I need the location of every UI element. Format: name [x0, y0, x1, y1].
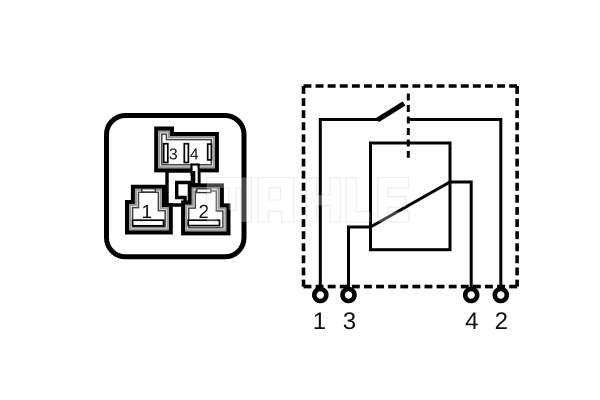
svg-text:2: 2 — [495, 308, 508, 335]
svg-text:4: 4 — [190, 146, 199, 163]
svg-text:4: 4 — [465, 308, 478, 335]
svg-text:1: 1 — [142, 202, 153, 223]
svg-text:3: 3 — [343, 308, 356, 335]
svg-text:3: 3 — [169, 146, 178, 163]
svg-text:1: 1 — [313, 308, 326, 335]
